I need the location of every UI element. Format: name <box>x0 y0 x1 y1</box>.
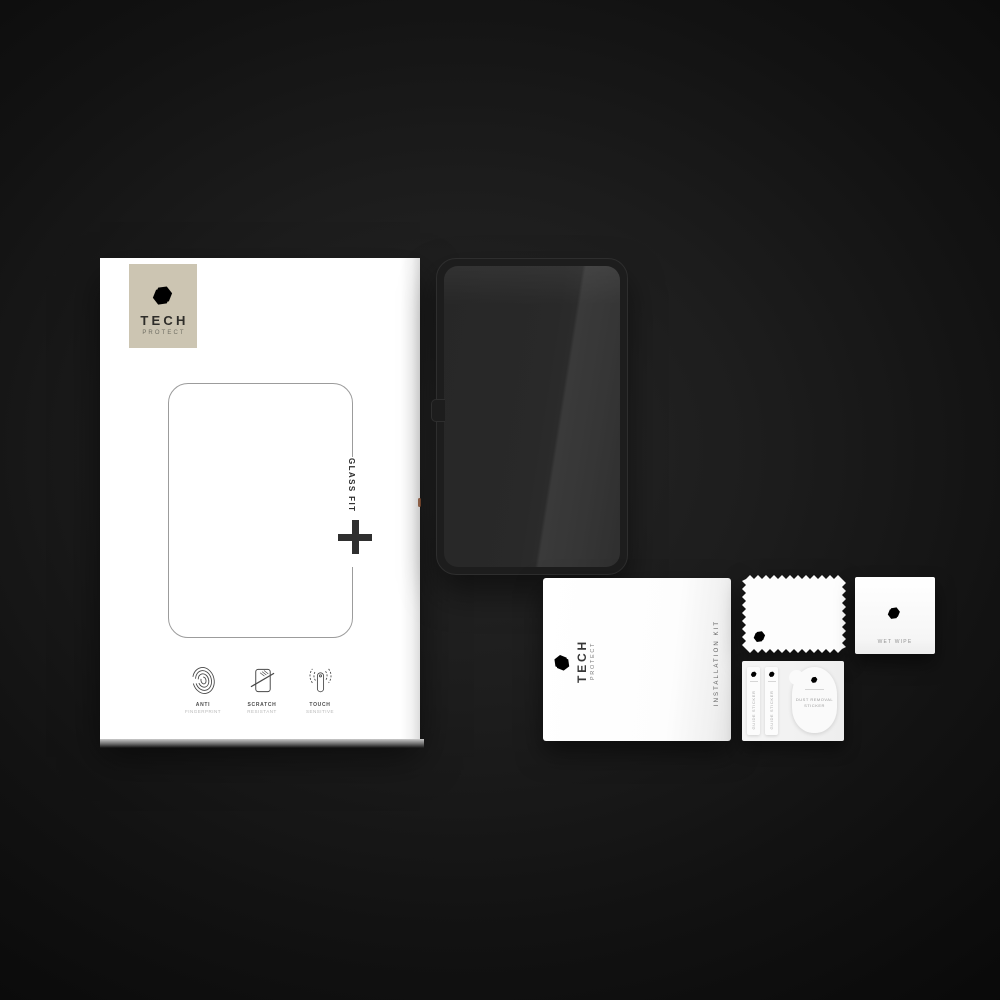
hexagon-logo-icon <box>810 675 819 684</box>
touch-icon <box>307 666 334 695</box>
dust-removal-label-line1: DUST REMOVAL <box>792 697 837 702</box>
brand-name-line2: PROTECT <box>142 330 185 336</box>
divider <box>750 681 758 682</box>
glass-surface <box>444 266 620 567</box>
sticker-card: GUIDE STICKER GUIDE STICKER DUST REMOVAL… <box>742 661 844 741</box>
brand-name-line1: TECH <box>140 313 188 328</box>
feature-row: ANTI FINGERPRINT SCRATCH RESISTANT <box>100 666 420 718</box>
scratch-icon <box>249 666 276 695</box>
hexagon-logo-icon <box>886 604 903 621</box>
feature-label-line2: SENSITIVE <box>285 709 355 714</box>
dust-removal-sticker: DUST REMOVAL STICKER <box>792 667 837 733</box>
guide-sticker-strip: GUIDE STICKER <box>747 667 760 735</box>
divider <box>805 689 824 690</box>
guide-sticker-label: GUIDE STICKER <box>751 688 757 732</box>
guide-sticker-label: GUIDE STICKER <box>769 688 775 732</box>
product-box: TECH PROTECT GLASS FIT ANTI FINGERP <box>100 258 420 739</box>
tempered-glass <box>436 258 628 575</box>
hexagon-logo-icon <box>750 670 758 678</box>
plus-icon <box>338 520 372 554</box>
wet-wipe-sachet: WET WIPE <box>855 577 935 654</box>
kit-brand-line1: TECH <box>575 639 589 683</box>
microfiber-cloth <box>742 575 846 653</box>
dust-removal-label-line2: STICKER <box>792 703 837 708</box>
product-name-label: GLASS FIT <box>347 458 356 512</box>
installation-kit-packet: TECH PROTECT INSTALLATION KIT <box>543 578 731 741</box>
guide-sticker-strip: GUIDE STICKER <box>765 667 778 735</box>
installation-kit-label: INSTALLATION KIT <box>714 603 726 723</box>
divider <box>768 681 776 682</box>
fingerprint-icon <box>190 666 217 695</box>
kit-brand-logo: TECH PROTECT <box>545 634 601 690</box>
wet-wipe-label: WET WIPE <box>855 639 935 645</box>
edge-reflection <box>418 498 421 507</box>
hexagon-logo-icon <box>752 628 768 644</box>
glass-pull-tab <box>431 399 445 422</box>
hexagon-logo-icon <box>550 651 572 673</box>
hexagon-logo-icon <box>150 281 177 308</box>
hexagon-logo-icon <box>768 670 776 678</box>
feature-label-line1: TOUCH <box>285 702 355 708</box>
tablet-outline <box>168 383 353 638</box>
product-photo-scene: TECH PROTECT GLASS FIT ANTI FINGERP <box>0 0 1000 1000</box>
kit-brand-line2: PROTECT <box>590 642 596 680</box>
brand-logo: TECH PROTECT <box>129 264 197 348</box>
feature-touch-sensitive: TOUCH SENSITIVE <box>285 666 355 714</box>
